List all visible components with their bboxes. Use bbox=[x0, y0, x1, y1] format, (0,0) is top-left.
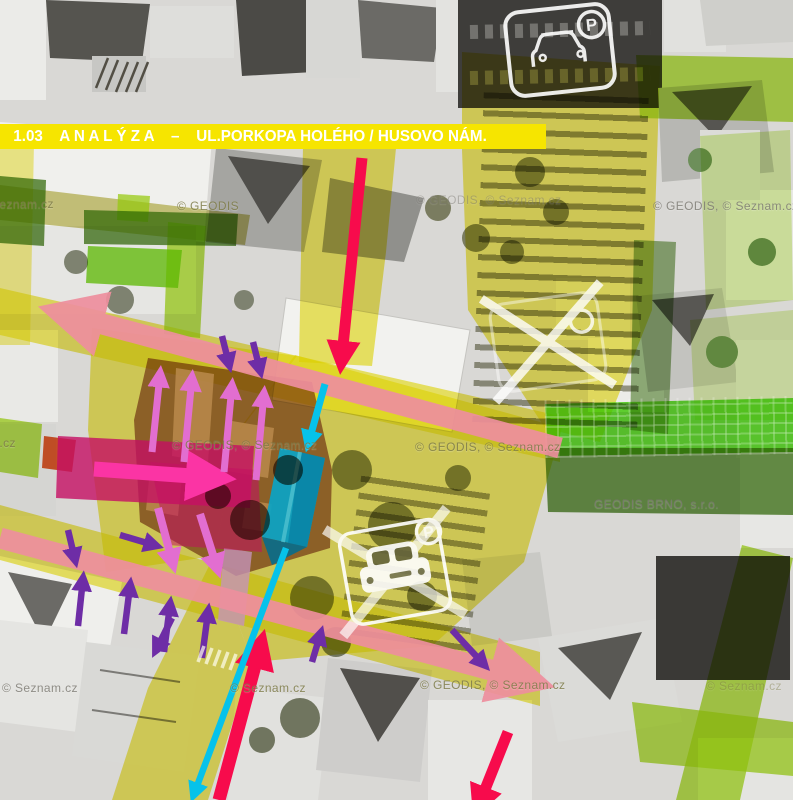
no-parking-filled-car-icon: P bbox=[325, 508, 466, 636]
watermark: © GEODIS, © Seznam.cz bbox=[172, 438, 317, 452]
watermark: GEODIS BRNO, s.r.o. bbox=[594, 497, 719, 511]
title-bar: 1.03 A N A L Ý Z A – UL.PORKOPA HOLÉHO /… bbox=[0, 124, 546, 149]
watermark: © Seznam.cz bbox=[706, 679, 782, 693]
watermark: © Seznam.cz bbox=[0, 197, 54, 211]
watermark: © Seznam.cz bbox=[2, 681, 78, 695]
watermark: © GEODIS, © Seznam.cz bbox=[415, 440, 560, 454]
urban-analysis-board: P P © Seznam.cz © GEODIS © GEODIS, © Sez bbox=[0, 0, 793, 800]
no-parking-crossed-icon bbox=[481, 282, 614, 402]
map-symbols: P P bbox=[0, 0, 793, 800]
watermark: © GEODIS, © Seznam.cz bbox=[420, 678, 565, 692]
watermark: © GEODIS bbox=[177, 199, 239, 213]
parking-lot-icon: P bbox=[504, 3, 616, 97]
parking-badge-letter: P bbox=[585, 15, 598, 35]
watermark: © GEODIS, © Seznam.cz bbox=[653, 199, 793, 213]
watermark: © Seznam.cz bbox=[0, 436, 16, 450]
watermark: © GEODIS, © Seznam.cz bbox=[416, 193, 561, 207]
page-title: 1.03 A N A L Ý Z A – UL.PORKOPA HOLÉHO /… bbox=[0, 124, 487, 149]
watermark: © Seznam.cz bbox=[230, 681, 306, 695]
